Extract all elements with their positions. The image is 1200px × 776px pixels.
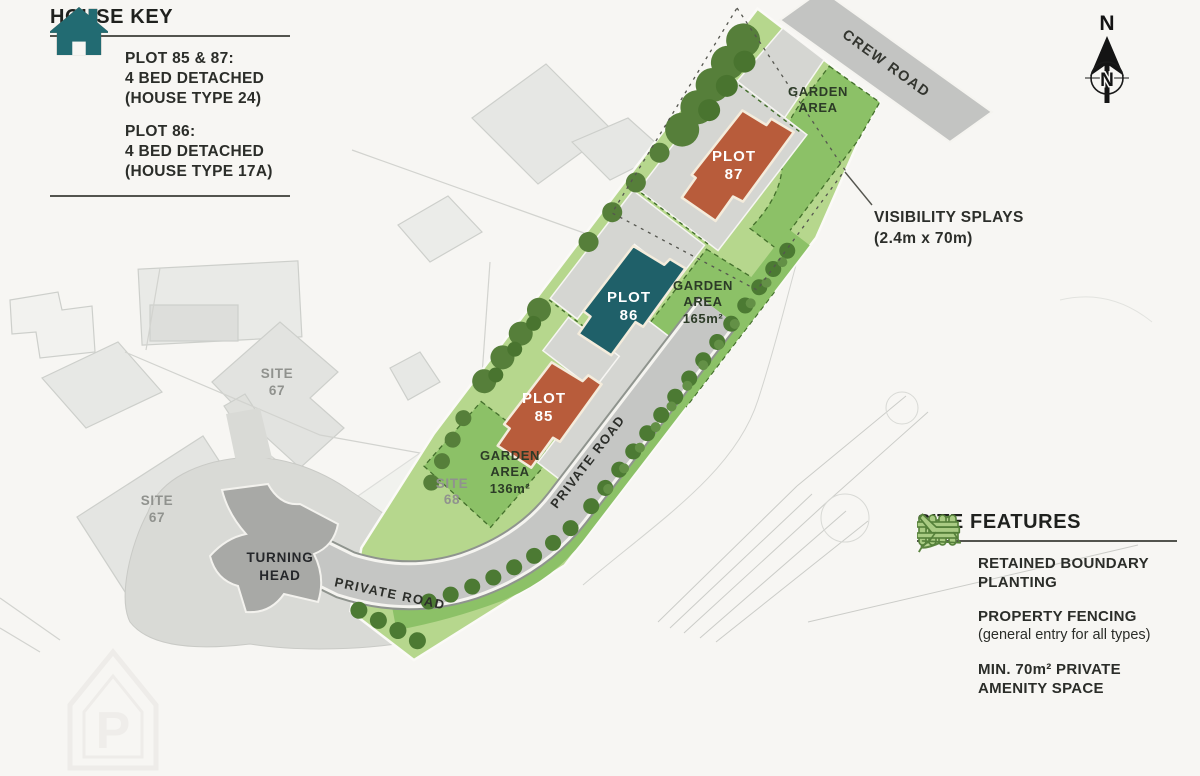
key-item-line: (HOUSE TYPE 17A) — [125, 162, 273, 182]
key-item-line: PLOT 86: — [125, 122, 273, 142]
feature-line: PROPERTY FENCING — [978, 607, 1150, 626]
house-key-item-plot86: PLOT 86: 4 BED DETACHED (HOUSE TYPE 17A) — [50, 122, 290, 182]
visibility-leader-line — [845, 172, 872, 205]
svg-text:(2.4m x 70m): (2.4m x 70m) — [874, 230, 973, 247]
site-68-label: SITE — [436, 476, 468, 491]
north-compass: N N — [1085, 12, 1129, 103]
svg-text:67: 67 — [149, 510, 165, 525]
plot-86-label: PLOT — [607, 289, 651, 306]
svg-text:68: 68 — [444, 492, 460, 507]
key-item-line: PLOT 85 & 87: — [125, 49, 264, 69]
watermark-letter: P — [96, 702, 131, 760]
svg-text:AREA: AREA — [683, 294, 722, 309]
site-features-legend: SITE FEATURES RETAINED BOUNDARY PLANTING — [917, 511, 1177, 713]
svg-text:85: 85 — [535, 408, 554, 425]
leaf-icon — [917, 554, 963, 556]
garden-86-label: GARDEN — [673, 278, 733, 293]
lounger-icon — [917, 660, 963, 662]
svg-text:136m²: 136m² — [490, 481, 531, 496]
feature-line: MIN. 70m² PRIVATE — [978, 660, 1121, 679]
compass-inner-n: N — [1100, 70, 1114, 91]
svg-text:86: 86 — [620, 307, 639, 324]
key-item-line: (HOUSE TYPE 24) — [125, 89, 264, 109]
svg-text:165m²: 165m² — [683, 311, 724, 326]
turning-head-label: TURNING — [246, 550, 313, 565]
house-key-item-plot85-87: PLOT 85 & 87: 4 BED DETACHED (HOUSE TYPE… — [50, 49, 290, 109]
svg-text:87: 87 — [725, 166, 744, 183]
svg-text:67: 67 — [269, 383, 285, 398]
fence-icon — [917, 607, 963, 609]
feature-line: RETAINED BOUNDARY — [978, 554, 1149, 573]
plot-87-label: PLOT — [712, 148, 756, 165]
house-icon — [50, 122, 110, 124]
feature-line: AMENITY SPACE — [978, 679, 1121, 698]
garden-85-label: GARDEN — [480, 448, 540, 463]
svg-text:AREA: AREA — [798, 100, 837, 115]
svg-text:HEAD: HEAD — [259, 568, 300, 583]
feature-line: (general entry for all types) — [978, 626, 1150, 645]
site-plan-page: CREW ROAD PLOT 87 PLOT 86 PLOT 85 GARDEN… — [0, 0, 1200, 776]
key-item-line: 4 BED DETACHED — [125, 69, 264, 89]
feature-retained-planting: RETAINED BOUNDARY PLANTING — [917, 554, 1177, 592]
divider — [50, 195, 290, 197]
svg-text:AREA: AREA — [490, 464, 529, 479]
garden-87-label: GARDEN — [788, 84, 848, 99]
visibility-splays-label: VISIBILITY SPLAYS — [874, 209, 1024, 226]
site-67-lower-label: SITE — [141, 493, 173, 508]
watermark-logo: P — [70, 652, 156, 768]
house-key-legend: HOUSE KEY PLOT 85 & 87: 4 BED DETACHED (… — [50, 6, 290, 209]
feature-amenity-space: MIN. 70m² PRIVATE AMENITY SPACE — [917, 660, 1177, 698]
site-67-upper-label: SITE — [261, 366, 293, 381]
feature-line: PLANTING — [978, 573, 1149, 592]
plot-85-label: PLOT — [522, 390, 566, 407]
feature-property-fencing: PROPERTY FENCING (general entry for all … — [917, 607, 1177, 645]
key-item-line: 4 BED DETACHED — [125, 142, 273, 162]
compass-n-label: N — [1099, 12, 1114, 35]
